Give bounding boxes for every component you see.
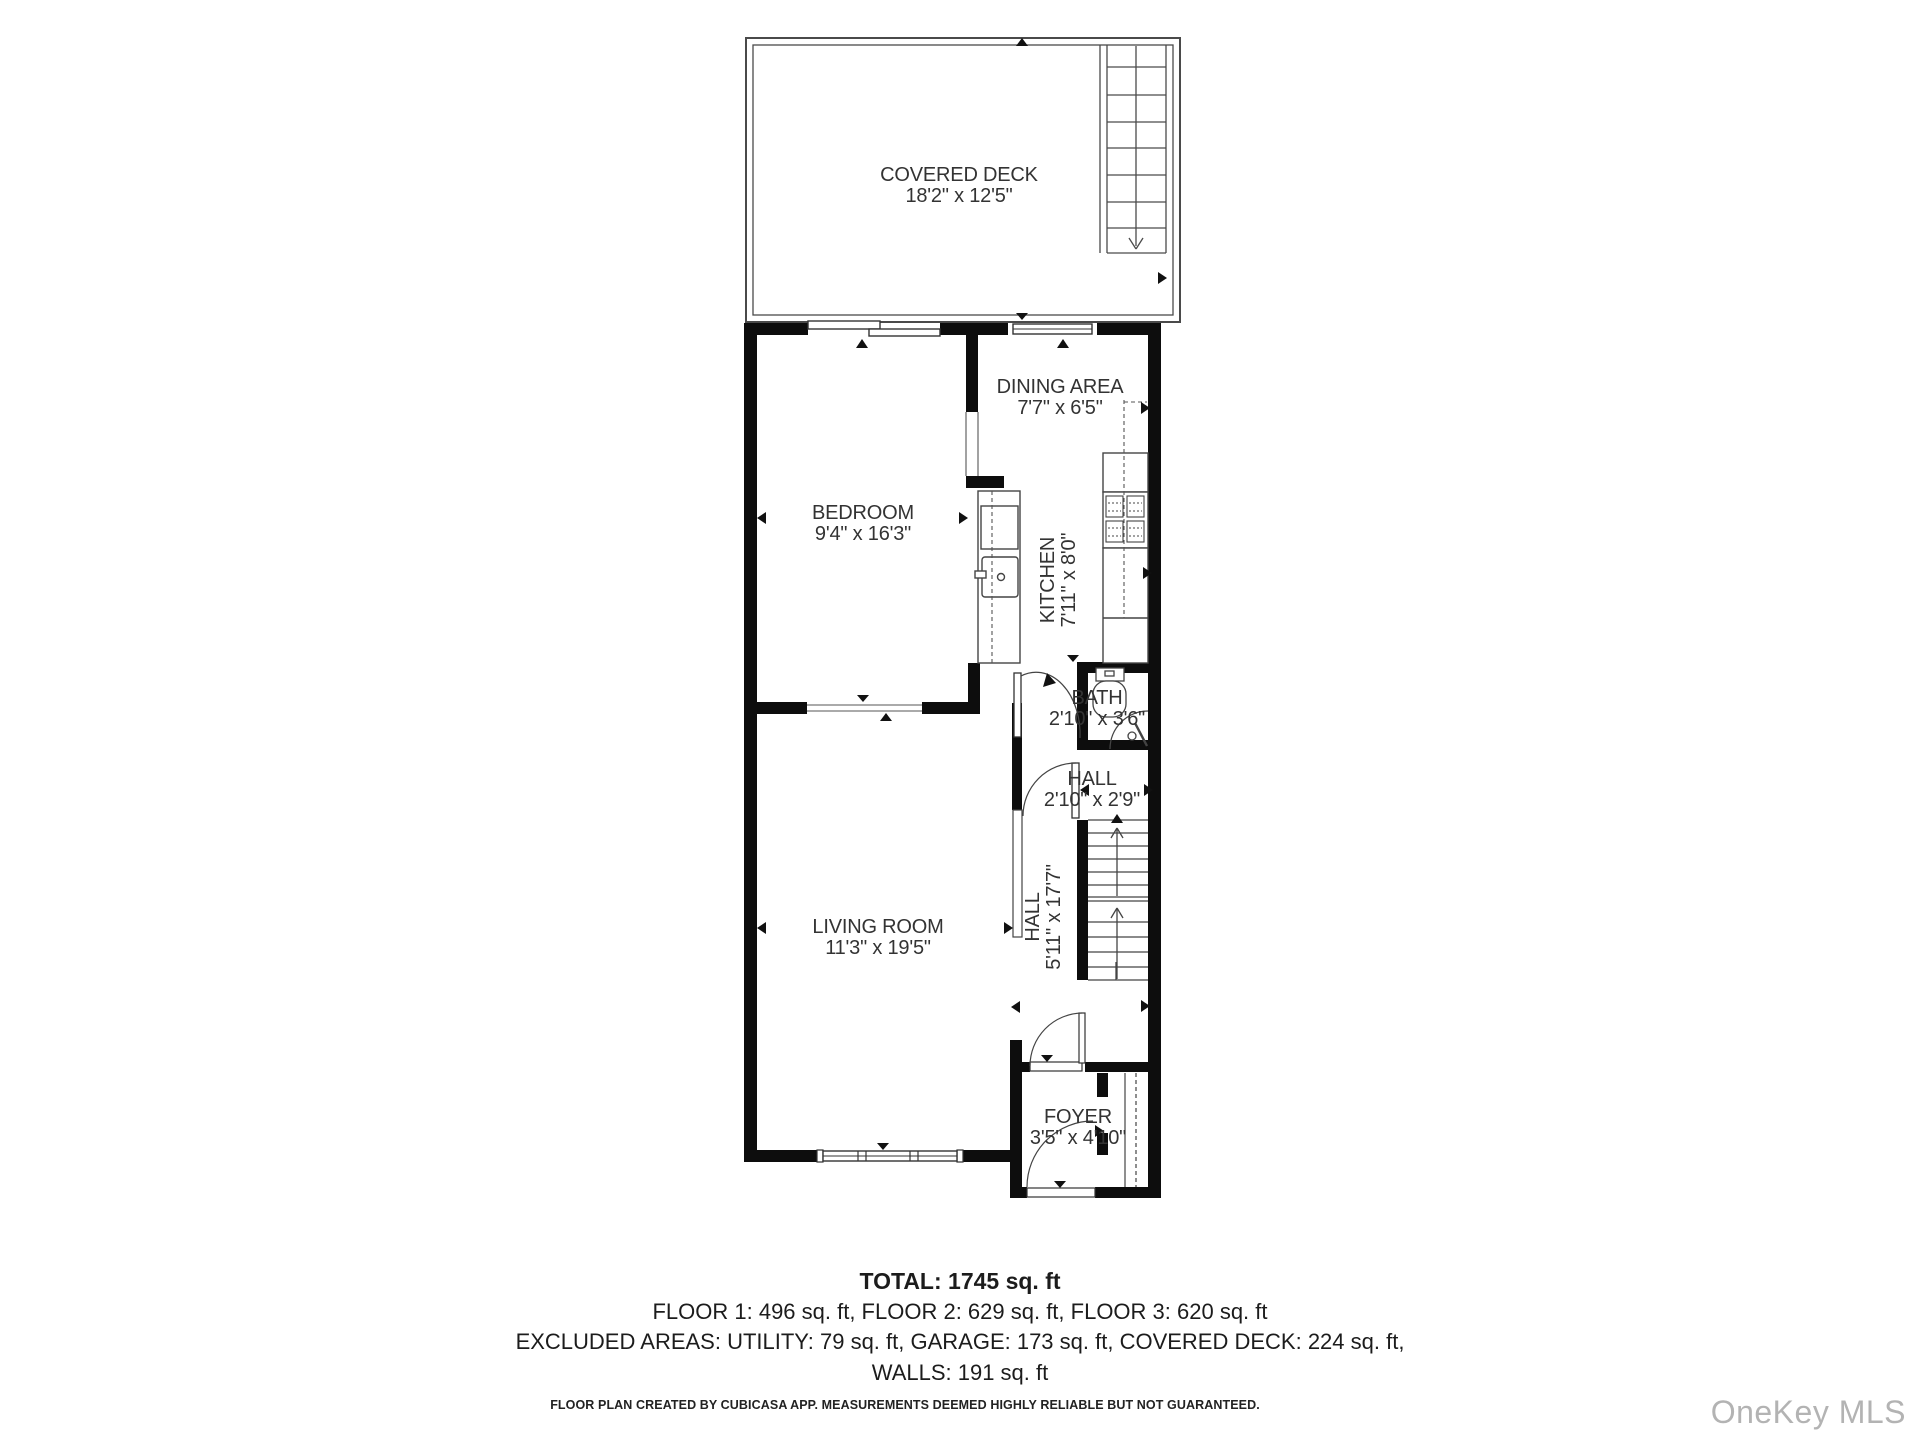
living-room-window: [817, 1150, 963, 1162]
room-label-kitchen: KITCHEN 7'11" x 8'0": [1038, 533, 1080, 628]
room-dims: 7'7" x 6'5": [997, 398, 1124, 419]
room-dims: 2'10" x 3'6": [1049, 709, 1145, 730]
room-name: BATH: [1071, 687, 1122, 709]
summary-total: TOTAL: 1745 sq. ft: [516, 1266, 1405, 1297]
area-summary: TOTAL: 1745 sq. ft FLOOR 1: 496 sq. ft, …: [516, 1266, 1405, 1388]
room-label-dining-area: DINING AREA 7'7" x 6'5": [997, 377, 1124, 419]
room-name: HALL: [1022, 892, 1044, 941]
dining-window: [1008, 323, 1097, 335]
footer-disclaimer: FLOOR PLAN CREATED BY CUBICASA APP. MEAS…: [550, 1398, 1260, 1412]
floor-plan-page: COVERED DECK 18'2" x 12'5" DINING AREA 7…: [0, 0, 1920, 1440]
room-label-living-room: LIVING ROOM 11'3" x 19'5": [812, 917, 943, 959]
hall-railing: [1013, 810, 1022, 937]
room-label-bath: BATH 2'10" x 3'6": [1049, 688, 1145, 730]
room-dims: 11'3" x 19'5": [812, 938, 943, 959]
room-label-hall-main: HALL 5'11" x 17'7": [1023, 864, 1065, 970]
stove: [1103, 492, 1148, 548]
summary-walls: WALLS: 191 sq. ft: [516, 1358, 1405, 1389]
room-dims: 18'2" x 12'5": [880, 186, 1038, 207]
interior-stairs: [1088, 820, 1148, 980]
kitchen-island: [975, 491, 1020, 663]
sliding-door: [808, 321, 940, 336]
summary-floors: FLOOR 1: 496 sq. ft, FLOOR 2: 629 sq. ft…: [516, 1297, 1405, 1328]
foyer-closet: [1125, 1073, 1136, 1187]
room-name: HALL: [1067, 768, 1116, 790]
watermark: OneKey MLS: [1711, 1394, 1906, 1431]
room-label-bedroom: BEDROOM 9'4" x 16'3": [812, 503, 914, 545]
cooktop: [981, 506, 1018, 549]
foyer-hall-door: [1030, 1013, 1085, 1071]
summary-excluded: EXCLUDED AREAS: UTILITY: 79 sq. ft, GARA…: [516, 1327, 1405, 1358]
room-dims: 7'11" x 8'0": [1059, 533, 1080, 628]
room-name: BEDROOM: [812, 502, 914, 524]
room-dims: 9'4" x 16'3": [812, 524, 914, 545]
room-name: LIVING ROOM: [812, 916, 943, 938]
room-name: KITCHEN: [1037, 537, 1059, 623]
room-dims: 5'11" x 17'7": [1044, 864, 1065, 970]
room-name: COVERED DECK: [880, 164, 1038, 186]
floor-plan-drawing: [0, 0, 1920, 1440]
room-name: DINING AREA: [997, 376, 1124, 398]
wall-openings: [807, 412, 978, 711]
room-label-covered-deck: COVERED DECK 18'2" x 12'5": [880, 165, 1038, 207]
room-name: FOYER: [1044, 1106, 1112, 1128]
room-dims: 3'5" x 4'10": [1030, 1128, 1126, 1149]
room-dims: 2'10" x 2'9": [1044, 790, 1140, 811]
walls: [744, 323, 1161, 1198]
kitchen-counter-right: [1103, 453, 1148, 663]
room-label-foyer: FOYER 3'5" x 4'10": [1030, 1107, 1126, 1149]
room-label-hall-small: HALL 2'10" x 2'9": [1044, 769, 1140, 811]
deck-stairs: [1100, 45, 1166, 253]
